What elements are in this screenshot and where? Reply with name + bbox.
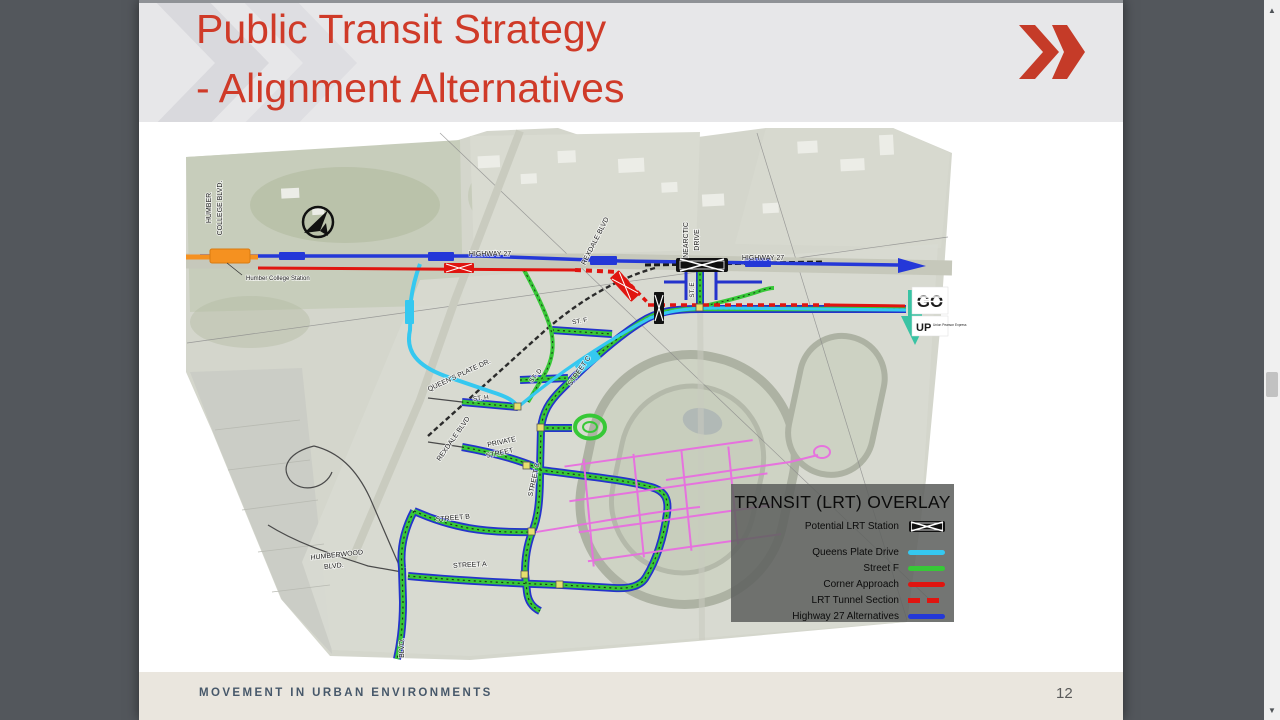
blue-lrt-station <box>428 252 454 261</box>
legend-row-station: Potential LRT Station <box>731 518 954 534</box>
red-line-swatch <box>908 582 945 587</box>
label-humberwood-blvd-bottom: BLVD. <box>399 638 406 658</box>
legend-row-queens-plate: Queens Plate Drive <box>731 544 954 560</box>
legend-row-corner-approach: Corner Approach <box>731 576 954 592</box>
blue-lrt-station <box>590 256 617 265</box>
scrollbar-thumb[interactable] <box>1266 372 1278 397</box>
legend-row-highway27: Highway 27 Alternatives <box>731 608 954 624</box>
legend-title: TRANSIT (LRT) OVERLAY <box>731 492 954 513</box>
label-st-e: ST. E <box>689 282 696 298</box>
cyan-line-swatch <box>908 550 945 555</box>
legend-label: Highway 27 Alternatives <box>731 611 908 622</box>
legend-label: LRT Tunnel Section <box>731 595 908 606</box>
up-express-logo: UP <box>916 322 931 334</box>
scroll-up-icon: ▲ <box>1268 6 1276 15</box>
legend-label: Queens Plate Drive <box>731 547 908 558</box>
legend-transit-lrt-overlay: TRANSIT (LRT) OVERLAY Potential LRT Stat… <box>731 484 954 622</box>
legend-label: Corner Approach <box>731 579 908 590</box>
green-line-swatch <box>908 566 945 571</box>
label-nearctic-drive: NEARCTIC <box>683 222 690 258</box>
legend-row-lrt-tunnel: LRT Tunnel Section <box>731 592 954 608</box>
humber-college-station-box <box>210 249 250 263</box>
label-highway27-east: HIGHWAY 27 <box>742 255 784 262</box>
label-humber-college-station: Humber College Station <box>246 276 310 282</box>
scroll-up-button[interactable]: ▲ <box>1264 2 1280 18</box>
cyan-lrt-station <box>405 300 414 324</box>
blue-lrt-station <box>279 252 305 260</box>
label-humber-college-blvd: HUMBER <box>206 193 213 223</box>
lrt-station-symbol-icon <box>908 520 946 533</box>
blue-line-swatch <box>908 614 945 619</box>
red-lrt-station <box>444 263 474 273</box>
scrollbar-track[interactable]: ▲ ▼ <box>1264 0 1280 720</box>
transit-map: GO UP Union Pearson Express HUMBER COLLE… <box>0 0 1280 720</box>
label-humber-college-blvd: COLLEGE BLVD. <box>217 181 224 236</box>
label-highway27-west: HIGHWAY 27 <box>469 251 511 258</box>
legend-label: Street F <box>731 563 908 574</box>
scroll-down-icon: ▼ <box>1268 706 1276 715</box>
legend-row-street-f: Street F <box>731 560 954 576</box>
scroll-down-button[interactable]: ▼ <box>1264 702 1280 718</box>
red-dashed-line-swatch <box>908 598 945 603</box>
up-express-logo-subtext: Union Pearson Express <box>933 323 967 327</box>
label-nearctic-drive: DRIVE <box>694 229 701 251</box>
legend-label: Potential LRT Station <box>731 521 908 532</box>
